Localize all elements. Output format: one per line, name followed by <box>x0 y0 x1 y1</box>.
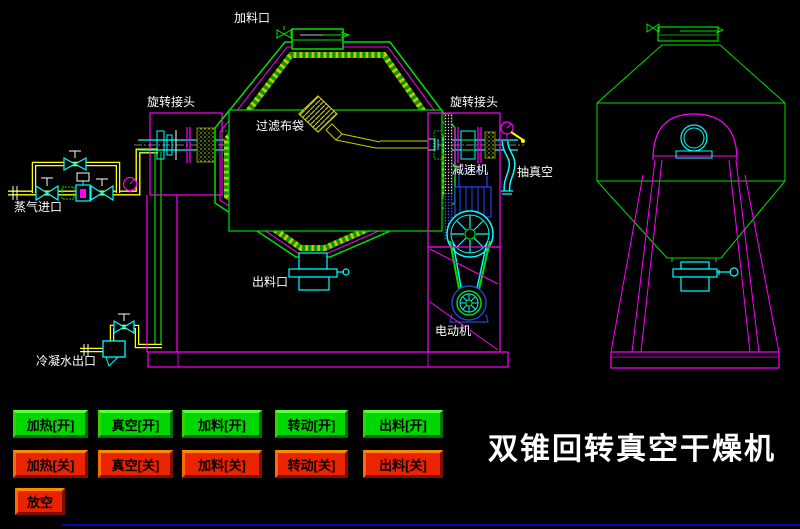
steam-valve-2 <box>91 179 113 200</box>
button-discharge-on[interactable]: 出料[开] <box>363 410 443 438</box>
condensate-valve <box>114 314 134 333</box>
steam-piping <box>8 151 158 201</box>
label-rotary-joint-right: 旋转接头 <box>450 96 498 108</box>
vacuum-line <box>501 122 525 194</box>
dryer-schematic <box>0 0 800 400</box>
steam-trap <box>103 341 125 366</box>
discharge-valve-front <box>672 258 738 291</box>
label-vacuum-suction: 抽真空 <box>517 166 553 178</box>
button-feed-off[interactable]: 加料[关] <box>182 450 262 478</box>
electric-motor <box>450 286 488 322</box>
label-motor: 电动机 <box>435 325 471 337</box>
process-diagram: 加料口 旋转接头 过滤布袋 旋转接头 蒸气进口 减速机 抽真空 出料口 电动机 … <box>0 0 800 400</box>
button-rotate-on[interactable]: 转动[开] <box>275 410 348 438</box>
footer-divider <box>62 524 800 526</box>
base-frame <box>148 352 508 367</box>
label-filter-bag: 过滤布袋 <box>256 120 304 132</box>
steam-regulator-valve <box>76 173 90 201</box>
button-heat-on[interactable]: 加热[开] <box>13 410 88 438</box>
label-condensate-outlet: 冷凝水出口 <box>36 355 96 367</box>
button-vent[interactable]: 放空 <box>15 488 65 515</box>
label-reducer: 减速机 <box>452 164 488 176</box>
button-discharge-off[interactable]: 出料[关] <box>363 450 443 478</box>
label-steam-inlet: 蒸气进口 <box>14 201 62 213</box>
button-feed-on[interactable]: 加料[开] <box>182 410 262 438</box>
button-heat-off[interactable]: 加热[关] <box>13 450 88 478</box>
label-feed-port: 加料口 <box>234 12 270 24</box>
label-discharge-port: 出料口 <box>252 276 288 288</box>
vacuum-valve-lever <box>511 132 523 140</box>
drum-front-view <box>597 24 785 368</box>
left-support-column <box>147 195 177 352</box>
label-rotary-joint-left: 旋转接头 <box>147 96 195 108</box>
feed-port-front <box>647 24 723 41</box>
page-title: 双锥回转真空干燥机 <box>488 424 778 468</box>
bypass-valve <box>64 151 86 170</box>
button-vacuum-on[interactable]: 真空[开] <box>98 410 173 438</box>
discharge-port <box>289 253 349 290</box>
stand-column <box>444 114 452 194</box>
bearing-pedestal <box>653 114 737 160</box>
button-vacuum-off[interactable]: 真空[关] <box>98 450 173 478</box>
steam-valve-1 <box>36 178 58 200</box>
feed-port <box>277 26 349 49</box>
gearbox <box>455 171 491 217</box>
button-rotate-off[interactable]: 转动[关] <box>275 450 348 478</box>
